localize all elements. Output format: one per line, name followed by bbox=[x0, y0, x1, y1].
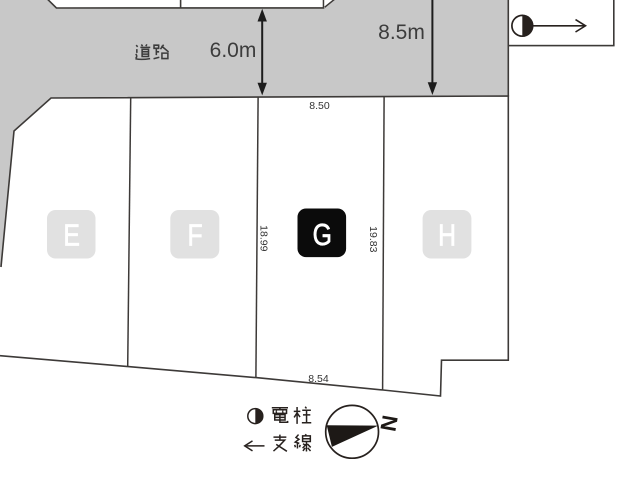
svg-text:F: F bbox=[188, 218, 203, 252]
svg-text:8.54: 8.54 bbox=[308, 373, 329, 385]
svg-text:18.99: 18.99 bbox=[258, 225, 270, 251]
svg-text:H: H bbox=[438, 218, 456, 252]
svg-text:E: E bbox=[63, 218, 80, 252]
svg-text:G: G bbox=[313, 217, 332, 251]
svg-text:8.50: 8.50 bbox=[309, 100, 330, 112]
svg-text:19.83: 19.83 bbox=[367, 226, 379, 252]
svg-text:8.5m: 8.5m bbox=[378, 21, 425, 44]
svg-text:6.0m: 6.0m bbox=[210, 39, 257, 62]
